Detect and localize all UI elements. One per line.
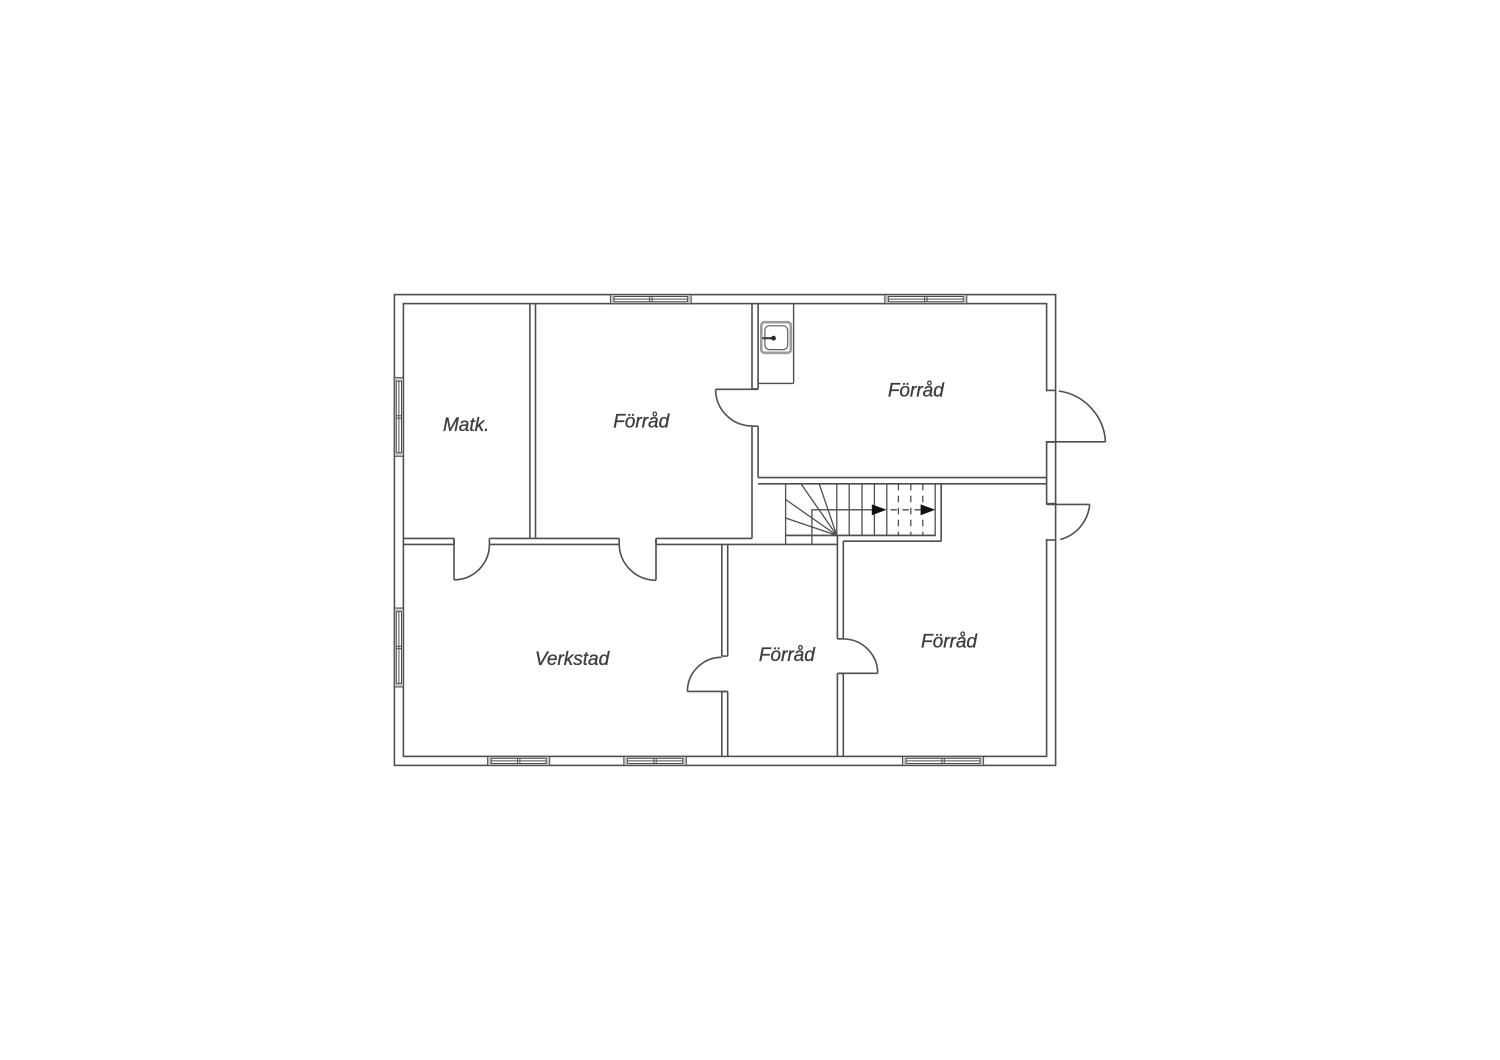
svg-text:Förråd: Förråd [921,631,978,652]
svg-text:Förråd: Förråd [613,412,670,433]
svg-text:Matk.: Matk. [443,415,489,436]
svg-text:Förråd: Förråd [888,380,945,401]
svg-text:Förråd: Förråd [759,645,816,666]
svg-text:Verkstad: Verkstad [535,649,611,670]
